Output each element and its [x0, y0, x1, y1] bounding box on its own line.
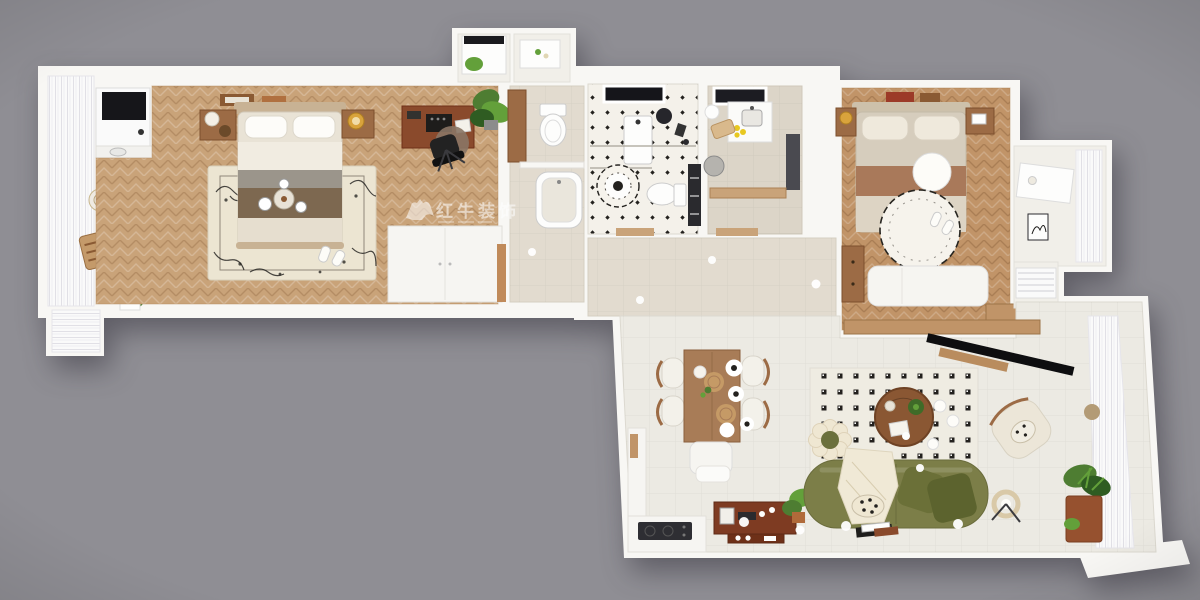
floorplan-svg: 红牛装饰	[0, 0, 1200, 600]
vignette-overlay	[0, 0, 1200, 600]
floorplan-render: 红牛装饰	[0, 0, 1200, 600]
